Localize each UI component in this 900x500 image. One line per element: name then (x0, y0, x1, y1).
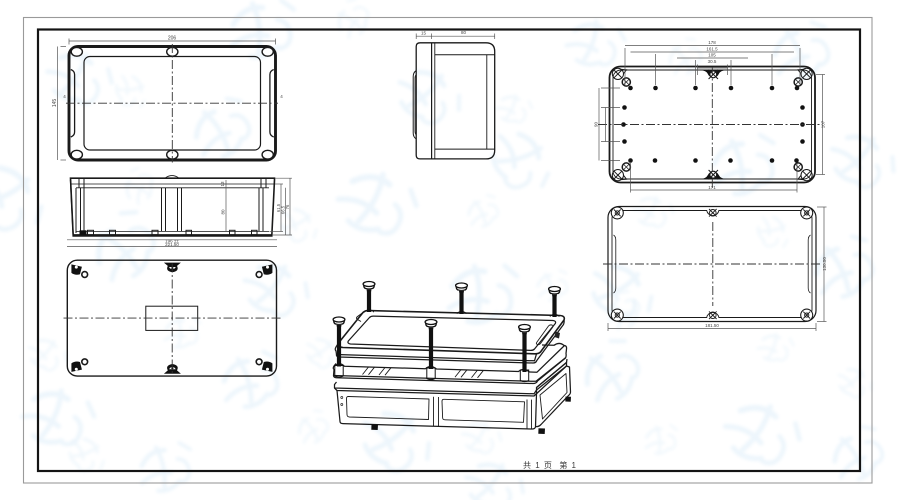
svg-text:15: 15 (421, 31, 427, 36)
svg-text:80: 80 (461, 30, 467, 35)
svg-text:206: 206 (168, 36, 177, 42)
svg-text:178: 178 (708, 40, 716, 45)
svg-text:171: 171 (708, 185, 716, 190)
svg-text:共 1 页 第 1: 共 1 页 第 1 (523, 460, 577, 470)
svg-text:107: 107 (821, 120, 826, 128)
svg-text:161.5: 161.5 (706, 47, 718, 52)
svg-text:30.5: 30.5 (708, 59, 717, 64)
svg-text:221.50: 221.50 (165, 242, 179, 247)
svg-text:130.50: 130.50 (822, 257, 827, 271)
svg-text:4: 4 (280, 94, 283, 99)
svg-text:90: 90 (594, 122, 599, 128)
svg-text:80: 80 (221, 209, 226, 215)
svg-text:105: 105 (708, 53, 716, 58)
svg-text:181.50: 181.50 (705, 323, 719, 328)
svg-text:145: 145 (52, 99, 58, 108)
svg-text:76: 76 (285, 204, 290, 209)
svg-text:13: 13 (220, 181, 225, 187)
